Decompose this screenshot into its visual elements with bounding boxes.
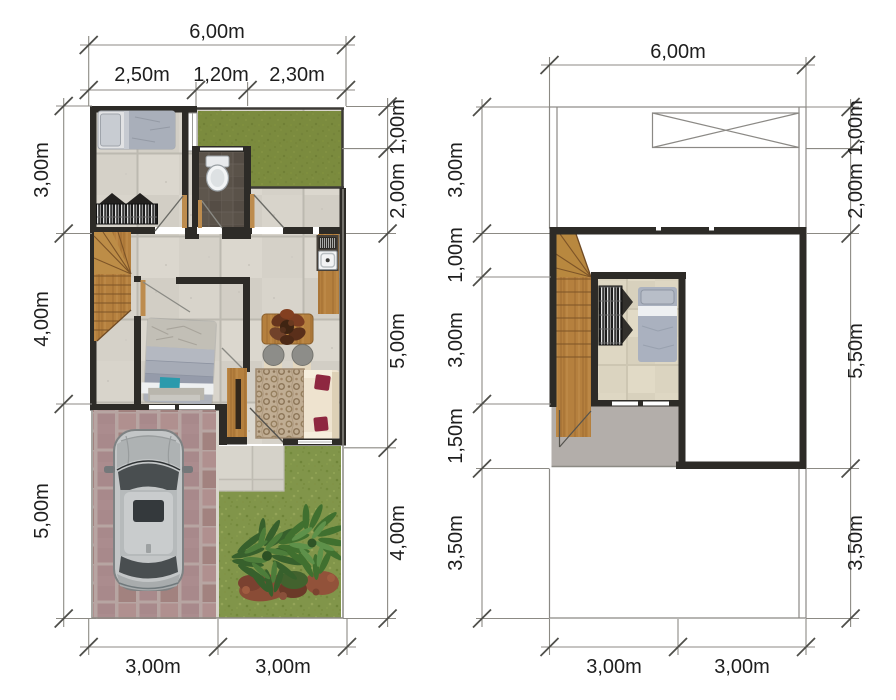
svg-text:6,00m: 6,00m — [189, 21, 245, 43]
svg-text:1,50m: 1,50m — [445, 408, 467, 464]
svg-text:3,00m: 3,00m — [714, 656, 770, 678]
svg-text:5,50m: 5,50m — [845, 323, 867, 379]
svg-text:3,50m: 3,50m — [445, 515, 467, 571]
svg-text:5,00m: 5,00m — [31, 483, 53, 539]
svg-text:1,20m: 1,20m — [193, 64, 249, 86]
svg-text:5,00m: 5,00m — [387, 313, 409, 369]
svg-text:2,30m: 2,30m — [269, 64, 325, 86]
svg-text:3,00m: 3,00m — [125, 656, 181, 678]
svg-text:3,00m: 3,00m — [586, 656, 642, 678]
svg-text:2,00m: 2,00m — [845, 163, 867, 219]
svg-text:1,00m: 1,00m — [387, 99, 409, 155]
svg-text:2,50m: 2,50m — [114, 64, 170, 86]
svg-text:6,00m: 6,00m — [650, 41, 706, 63]
svg-text:4,00m: 4,00m — [31, 291, 53, 347]
svg-text:3,00m: 3,00m — [255, 656, 311, 678]
svg-text:3,00m: 3,00m — [31, 142, 53, 198]
svg-text:1,00m: 1,00m — [445, 227, 467, 283]
svg-text:1,00m: 1,00m — [845, 100, 867, 156]
svg-text:3,50m: 3,50m — [845, 515, 867, 571]
svg-text:4,00m: 4,00m — [387, 505, 409, 561]
svg-text:3,00m: 3,00m — [445, 142, 467, 198]
svg-text:3,00m: 3,00m — [445, 312, 467, 368]
svg-text:2,00m: 2,00m — [387, 163, 409, 219]
